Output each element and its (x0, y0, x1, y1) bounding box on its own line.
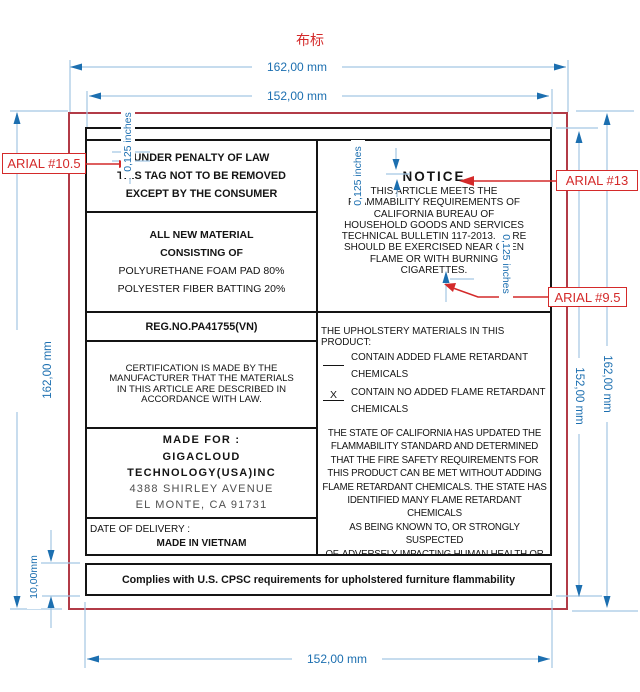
dim-right-inner-height: 152,00 mm (572, 358, 586, 434)
option2-checkline: X (323, 387, 344, 401)
dim-left-height: 162,00 mm (41, 332, 55, 408)
company-address-line2: EL MONTE, CA 91731 (136, 497, 268, 513)
company-name-line1: GIGACLOUD (162, 449, 240, 465)
notice-heading: NOTICE (402, 170, 465, 184)
dim-margin-notice-bottom: 0,125 inches (499, 228, 513, 300)
flame-retardant-option-row: CONTAIN ADDED FLAME RETARDANT CHEMICALS (321, 350, 548, 383)
country-of-origin: MADE IN VIETNAM (90, 538, 313, 549)
top-margin-strip (87, 129, 550, 141)
label-specification-drawing: 布标 UNDER PENALTY OF LAW THIS TAG NOT TO … (0, 0, 640, 692)
dim-margin-notice-top: 0,125 inches (351, 140, 365, 212)
materials-cell: ALL NEW MATERIAL CONSISTING OF POLYURETH… (87, 213, 316, 313)
materials-heading1: ALL NEW MATERIAL (149, 226, 253, 244)
upholstery-cell: THE UPHOLSTERY MATERIALS IN THIS PRODUCT… (318, 313, 550, 554)
cpsc-compliance-bar: Complies with U.S. CPSC requirements for… (85, 563, 552, 596)
date-of-delivery-label: DATE OF DELIVERY : (90, 524, 313, 535)
made-for-heading: MADE FOR : (163, 432, 240, 448)
dim-margin-top-left: 0,125 inches (121, 106, 135, 178)
materials-item: POLYURETHANE FOAM PAD 80% (119, 262, 285, 280)
drawing-title: 布标 (270, 30, 350, 50)
option2-text: CONTAIN NO ADDED FLAME RETARDANT CHEMICA… (351, 385, 546, 418)
california-statement: THE STATE OF CALIFORNIA HAS UPDATED THE … (321, 427, 548, 554)
dim-bottom-width: 152,00 mm (292, 652, 382, 667)
dim-top-outer-width: 162,00 mm (252, 60, 342, 75)
font-callout-arial-13: ARIAL #13 (556, 170, 638, 191)
font-callout-arial-10-5: ARIAL #10.5 (2, 153, 86, 174)
dim-right-outer-height: 162,00 mm (600, 346, 614, 422)
materials-item: POLYESTER FIBER BATTING 20% (118, 280, 286, 298)
dim-bar-height: 10,00mm (27, 545, 41, 609)
materials-heading2: CONSISTING OF (160, 244, 243, 262)
made-for-cell: MADE FOR : GIGACLOUD TECHNOLOGY(USA)INC … (87, 429, 316, 519)
font-callout-arial-9-5: ARIAL #9.5 (548, 287, 627, 307)
option1-checkline (323, 352, 344, 366)
company-name-line2: TECHNOLOGY(USA)INC (127, 465, 276, 481)
label-left-column: UNDER PENALTY OF LAW THIS TAG NOT TO BE … (87, 141, 318, 554)
certification-cell: CERTIFICATION IS MADE BY THE MANUFACTURE… (87, 342, 316, 429)
flame-retardant-option-row: X CONTAIN NO ADDED FLAME RETARDANT CHEMI… (321, 385, 548, 418)
registration-number-cell: REG.NO.PA41755(VN) (87, 313, 316, 342)
dim-top-inner-width: 152,00 mm (252, 89, 342, 104)
company-address-line1: 4388 SHIRLEY AVENUE (129, 481, 273, 497)
law-label: UNDER PENALTY OF LAW THIS TAG NOT TO BE … (85, 127, 552, 556)
delivery-cell: DATE OF DELIVERY : MADE IN VIETNAM (87, 519, 316, 554)
upholstery-heading: THE UPHOLSTERY MATERIALS IN THIS PRODUCT… (321, 326, 548, 348)
option1-text: CONTAIN ADDED FLAME RETARDANT CHEMICALS (351, 350, 528, 383)
